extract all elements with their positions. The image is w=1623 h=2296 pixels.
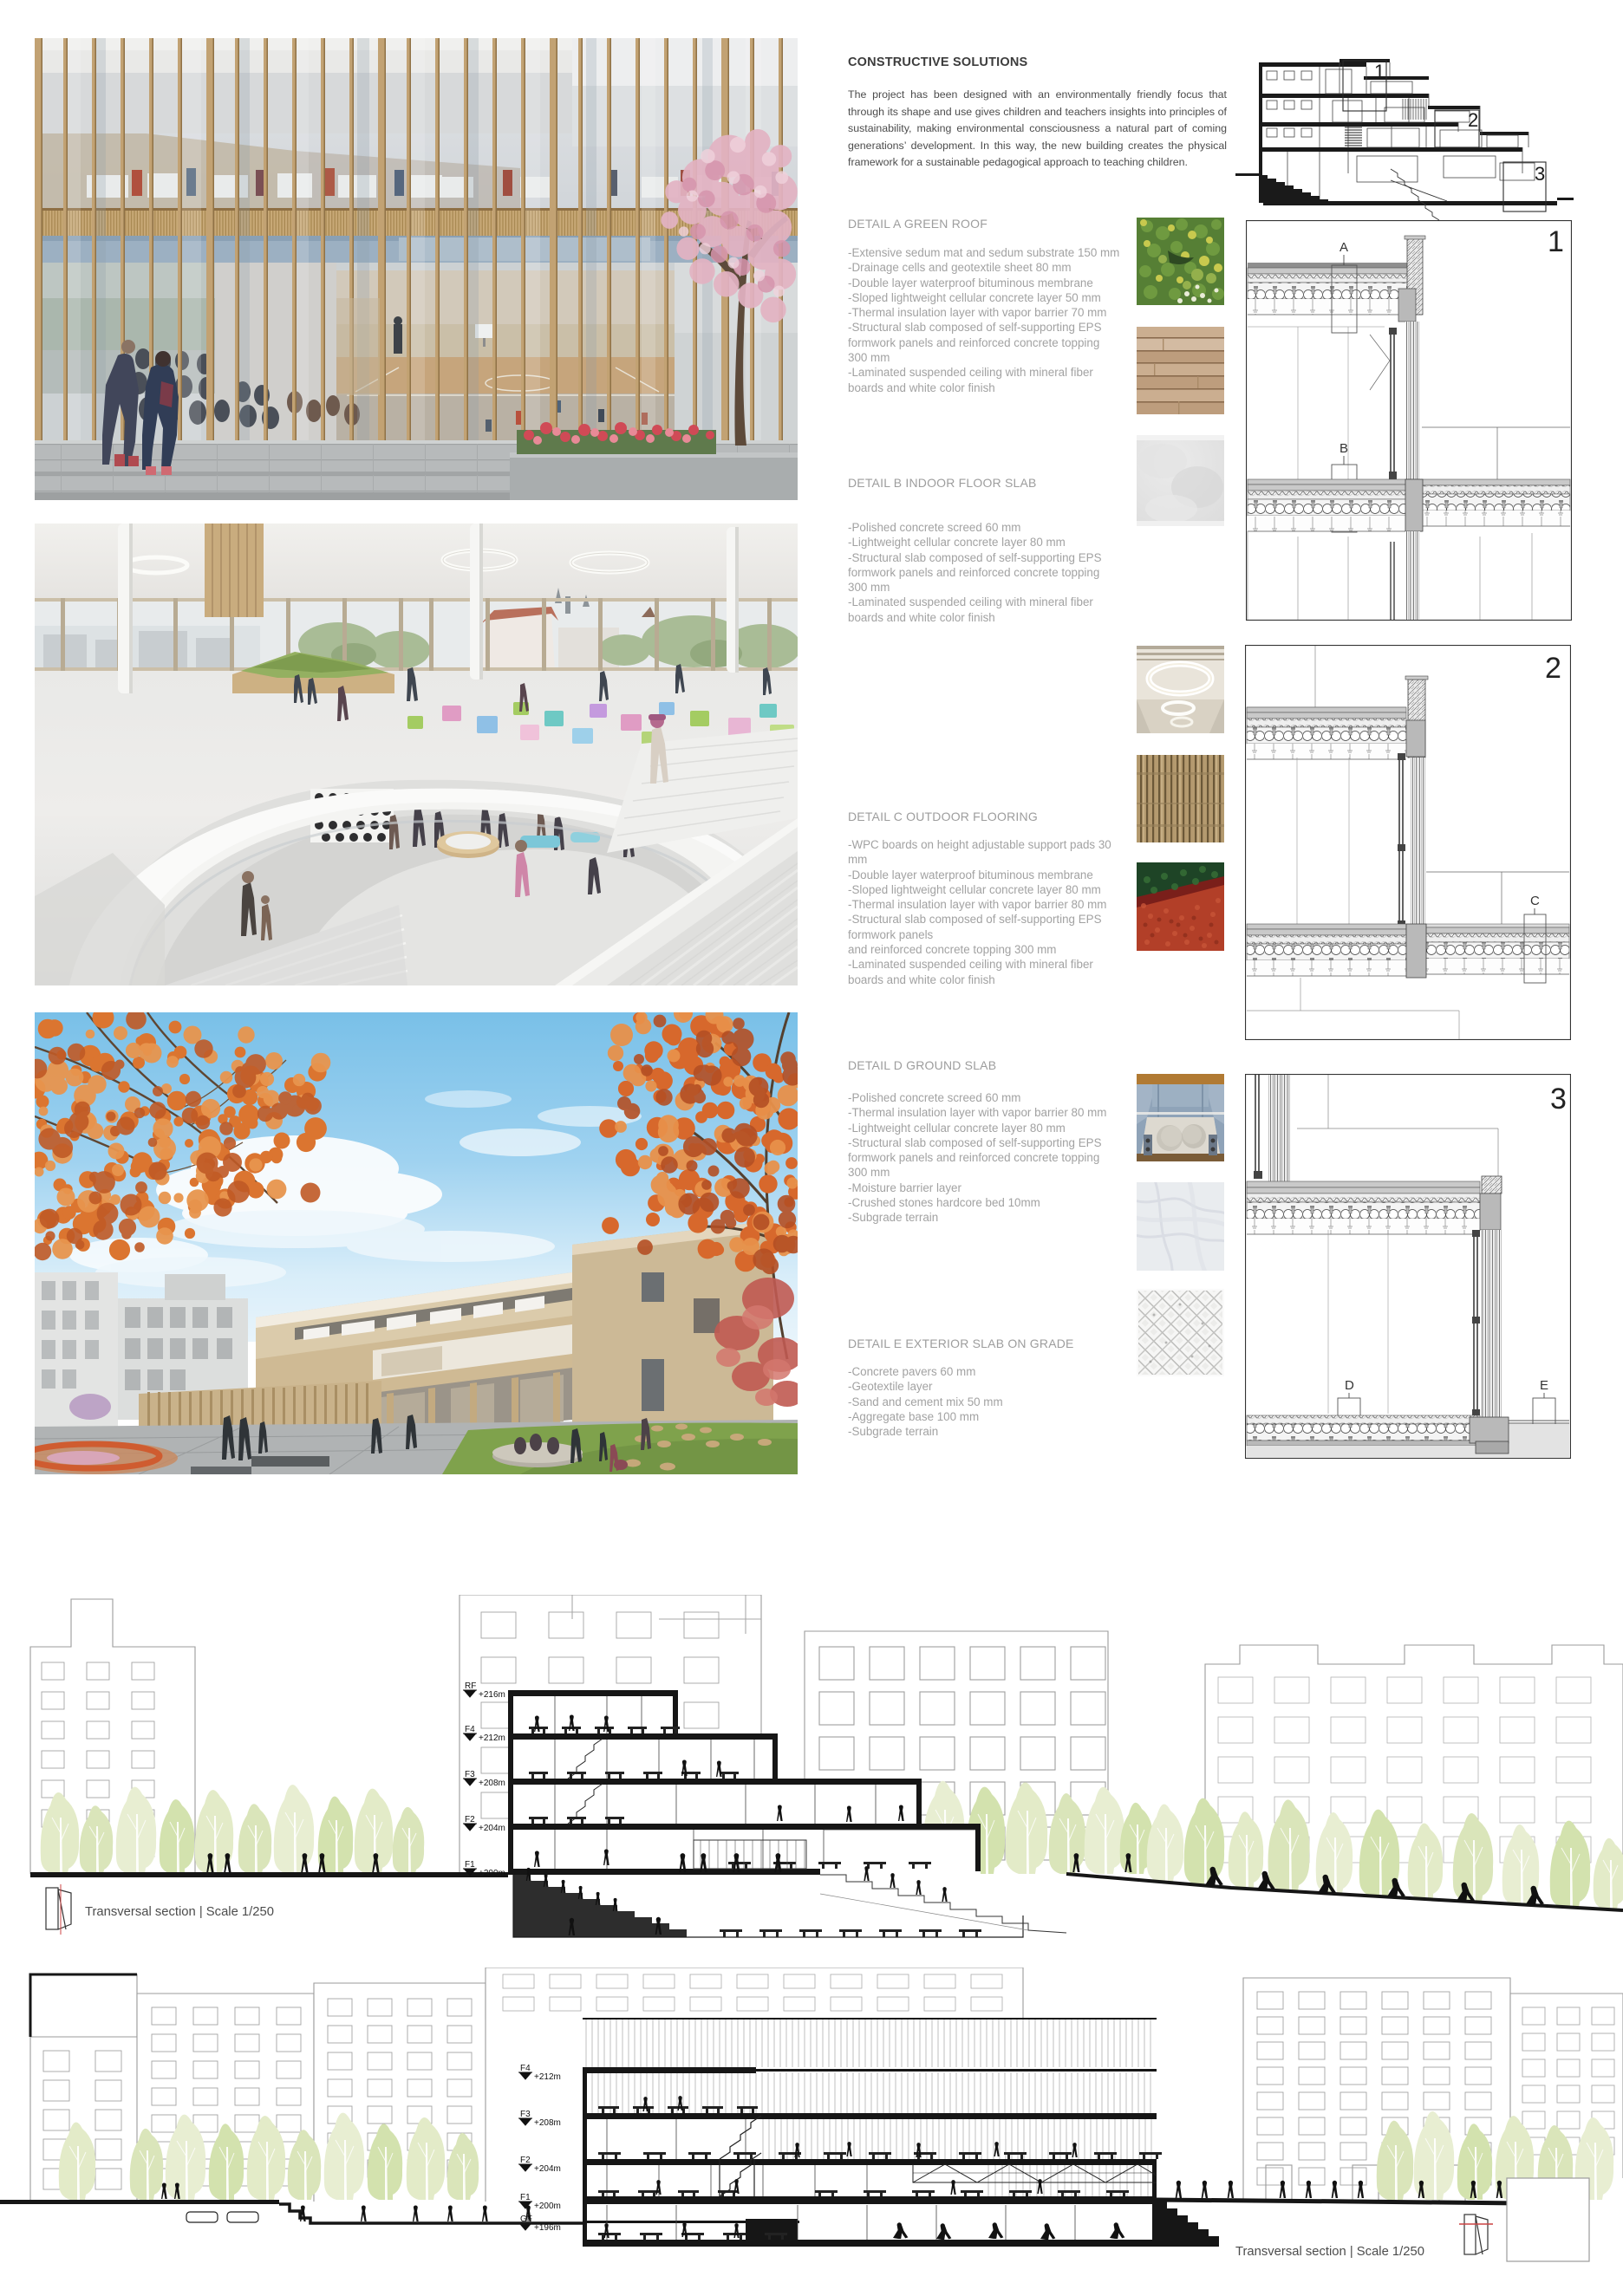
svg-text:F2: F2: [465, 1815, 475, 1824]
svg-text:3: 3: [1550, 1083, 1567, 1115]
svg-text:A: A: [1339, 240, 1348, 255]
svg-text:+208m: +208m: [534, 2118, 561, 2128]
svg-text:1: 1: [1374, 61, 1385, 82]
svg-text:+208m: +208m: [479, 1779, 505, 1788]
svg-text:F3: F3: [520, 2110, 531, 2119]
svg-text:C: C: [1530, 894, 1540, 908]
svg-text:Transversal section | Scale 1/: Transversal section | Scale 1/250: [85, 1905, 274, 1919]
svg-text:B: B: [1339, 441, 1348, 456]
svg-text:F2: F2: [520, 2156, 531, 2165]
svg-text:E: E: [1540, 1378, 1548, 1393]
svg-text:+216m: +216m: [479, 1690, 505, 1700]
svg-text:Transversal section | Scale 1/: Transversal section | Scale 1/250: [1235, 2245, 1424, 2259]
svg-text:2: 2: [1468, 109, 1478, 131]
svg-text:3: 3: [1535, 163, 1545, 185]
svg-text:D: D: [1345, 1378, 1354, 1393]
svg-text:1: 1: [1548, 225, 1564, 258]
svg-text:F4: F4: [465, 1725, 475, 1734]
svg-text:+200m: +200m: [534, 2202, 561, 2211]
svg-text:F1: F1: [520, 2193, 531, 2202]
svg-text:F1: F1: [465, 1860, 475, 1870]
svg-text:+204m: +204m: [534, 2164, 561, 2174]
svg-text:+204m: +204m: [479, 1824, 505, 1833]
svg-text:+212m: +212m: [534, 2072, 561, 2082]
svg-text:2: 2: [1545, 652, 1561, 685]
svg-text:F3: F3: [465, 1770, 475, 1779]
svg-text:RF: RF: [465, 1681, 476, 1691]
svg-text:+200m: +200m: [479, 1869, 505, 1878]
svg-text:+212m: +212m: [479, 1733, 505, 1743]
svg-text:F4: F4: [520, 2064, 531, 2073]
